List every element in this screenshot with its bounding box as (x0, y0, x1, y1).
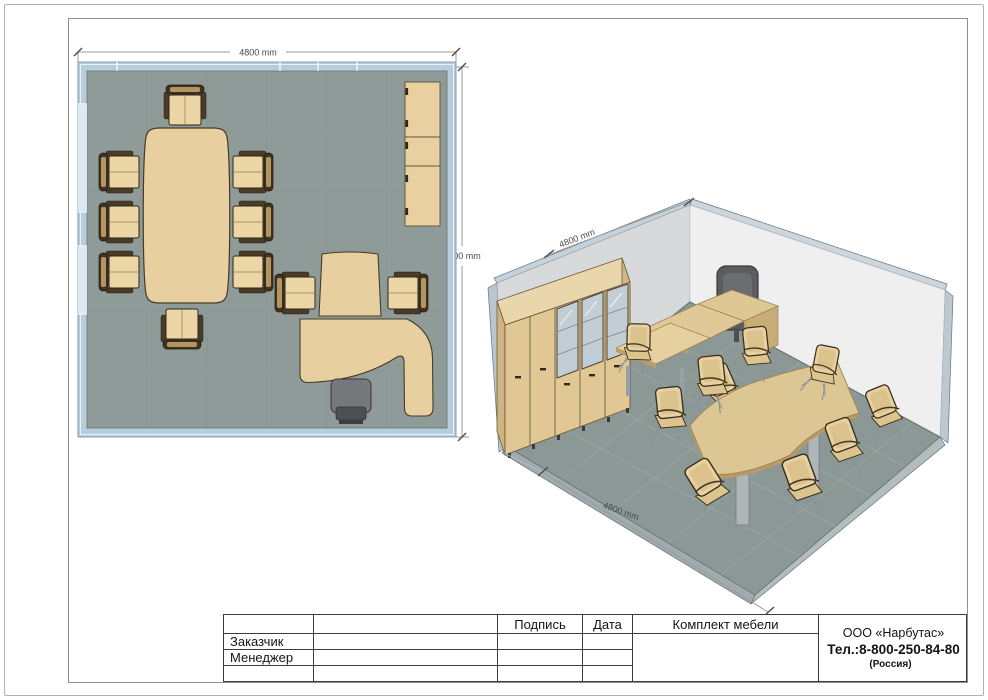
company-country: (Россия) (869, 659, 917, 672)
title-cell-blank (224, 615, 314, 634)
manager-label: Менеджер (224, 650, 314, 666)
manager-value-field[interactable] (314, 650, 498, 666)
floor-plan-view: 4800 mm 4800 mm (60, 30, 500, 450)
furniture-set-field[interactable] (633, 634, 819, 682)
company-name: ООО «Нарбутас» (843, 626, 944, 642)
company-info: ООО «Нарбутас» Тел.:8-800-250-84-80 (Рос… (819, 615, 968, 682)
title-cell-blank (498, 666, 583, 682)
title-block: Подпись Дата Комплект мебели Заказчик Ме… (223, 614, 967, 682)
manager-date-field[interactable] (583, 650, 633, 666)
title-cell-blank (583, 666, 633, 682)
window (78, 105, 87, 211)
title-cell-blank (314, 666, 498, 682)
furniture-set-header: Комплект мебели (633, 615, 819, 634)
date-header: Дата (583, 615, 633, 634)
plan-wall-cabinets (405, 82, 440, 226)
customer-label: Заказчик (224, 634, 314, 650)
manager-signature-field[interactable] (498, 650, 583, 666)
title-cell-blank (314, 615, 498, 634)
isometric-view: 4800 mm (480, 190, 985, 620)
signature-header: Подпись (498, 615, 583, 634)
plan-office-chair (331, 379, 371, 424)
title-cell-blank (224, 666, 314, 682)
plan-extension-table (319, 252, 381, 316)
plan-width-label: 4800 mm (239, 48, 277, 58)
customer-value-field[interactable] (314, 634, 498, 650)
company-phone: Тел.:8-800-250-84-80 (827, 642, 959, 659)
customer-date-field[interactable] (583, 634, 633, 650)
window (78, 247, 87, 313)
plan-guest-chair (388, 272, 428, 314)
plan-conference-table (143, 128, 230, 303)
plan-room (78, 62, 456, 437)
customer-signature-field[interactable] (498, 634, 583, 650)
plan-guest-chair (275, 272, 315, 314)
furniture-layout-sheet: { "plan_view": { "width_dim": "4800 mm",… (0, 0, 988, 700)
